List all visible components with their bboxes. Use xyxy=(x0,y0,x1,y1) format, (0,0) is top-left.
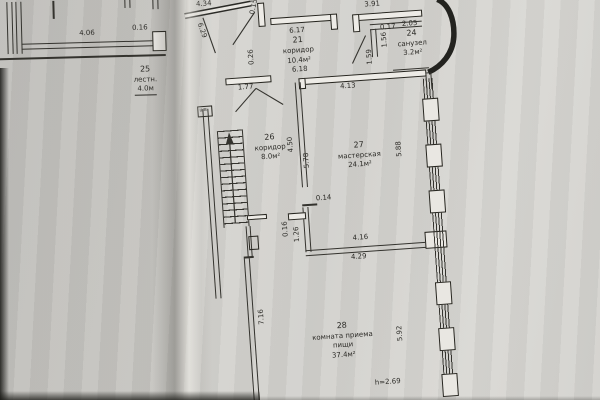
dim-5-88: 5.88 xyxy=(395,141,403,157)
dim-1-77: 1.77 xyxy=(238,84,254,92)
dim-1-56: 1.56 xyxy=(381,32,389,48)
door-swing-corridor21 xyxy=(231,12,257,45)
wall-pier-4 xyxy=(435,281,453,305)
wall-step-jog xyxy=(330,13,338,29)
dim-4-50: 4.50 xyxy=(287,137,295,153)
dim-4-34: 4.34 xyxy=(196,0,212,8)
main-floor-plan: шв 6.29 4.34 0.15 6.17 21 коридор 10.4м²… xyxy=(136,0,510,400)
dim-4-29: 4.29 xyxy=(351,253,367,261)
wall-pier-1 xyxy=(422,98,440,122)
wall-stub-left xyxy=(288,212,306,220)
dim-0-16: 0.16 xyxy=(282,221,290,237)
wall-3-91-jog xyxy=(352,14,360,32)
wall-jog-notch xyxy=(248,236,259,251)
wall-left-outer xyxy=(6,2,13,54)
dim-5-78: 5.78 xyxy=(303,152,311,168)
wall-pier-3 xyxy=(429,189,447,213)
vent-shaft-label: шв xyxy=(199,108,207,114)
dim-4-13: 4.13 xyxy=(340,82,356,90)
dim-7-16: 7.16 xyxy=(258,309,266,325)
wall-pier-6 xyxy=(441,373,459,397)
wall-pier-2 xyxy=(425,144,443,168)
slanted-wall-core xyxy=(184,3,251,16)
door-swing-corridor26-right xyxy=(256,87,283,107)
dim-4-06: 4.06 xyxy=(79,30,95,37)
room-28-label: 28 комната приема пищи 37.4м² xyxy=(287,317,399,364)
room-21-label: 6.17 21 коридор 10.4м² 6.18 xyxy=(272,25,325,77)
floor-plan-photo: 4.06 0.16 25 лестн. 4.0м xyxy=(0,0,600,400)
dim-2-05: 2.05 xyxy=(402,20,418,28)
dim-5-92: 5.92 xyxy=(396,325,404,341)
dim-0-14: 0.14 xyxy=(316,194,332,202)
dim-4-16: 4.16 xyxy=(352,234,368,242)
wall-pier-5 xyxy=(438,327,456,351)
wall-stub-line xyxy=(52,1,54,19)
dim-1-59: 1.59 xyxy=(366,49,374,65)
dim-0-26: 0.26 xyxy=(248,49,256,65)
room-24-label: 24 санузел 3.2м² xyxy=(386,27,438,60)
dim-1-26: 1.26 xyxy=(293,226,301,242)
wall-stub-a xyxy=(124,0,130,8)
dim-3-91: 3.91 xyxy=(364,0,380,8)
door-swing-corridor26-left xyxy=(234,88,257,111)
